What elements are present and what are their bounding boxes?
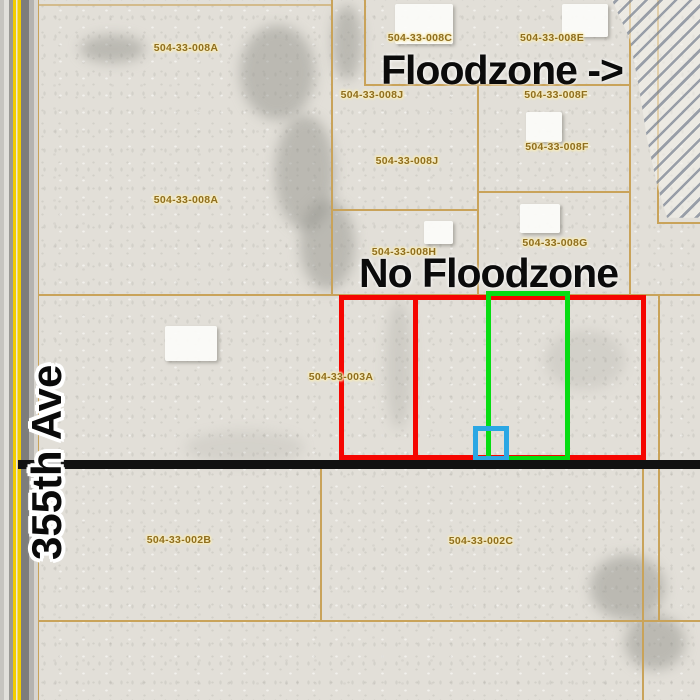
road-name-label: 355th Ave	[26, 365, 68, 560]
parcel-boundary-line	[331, 209, 478, 211]
parcel-boundary-line	[320, 466, 322, 621]
parcel-boundary-line	[657, 222, 700, 224]
parcel-boundary-line	[37, 620, 700, 622]
parcel-boundary-line	[477, 191, 630, 193]
parcel-label-002c: 504-33-002C	[449, 535, 514, 547]
building	[520, 204, 560, 233]
vegetation-patch	[240, 25, 315, 120]
parcel-label-008e: 504-33-008E	[520, 32, 584, 44]
floodzone-arrow-label: Floodzone ->	[381, 50, 623, 91]
parcel-label-008g: 504-33-008G	[522, 237, 587, 249]
parcel-label-008a-top: 504-33-008A	[154, 42, 219, 54]
parcel-label-002b: 504-33-002B	[147, 534, 212, 546]
parcel-label-003a: 504-33-003A	[309, 371, 374, 383]
parcel-boundary-line	[658, 466, 660, 621]
section-boundary-line	[18, 460, 700, 469]
vegetation-patch	[300, 200, 355, 290]
building	[165, 326, 217, 361]
parcel-boundary-line	[658, 294, 660, 461]
parcel-map: 504-33-008A 504-33-008C 504-33-008E 504-…	[0, 0, 700, 700]
parcel-label-008j-lower: 504-33-008J	[376, 155, 439, 167]
parcel-label-008a-lower: 504-33-008A	[154, 194, 219, 206]
no-floodzone-label: No Floodzone	[359, 253, 618, 294]
blue-parcel-outline	[473, 426, 509, 461]
vegetation-patch	[80, 35, 145, 63]
parcel-boundary-line	[331, 0, 333, 296]
parcel-boundary-line	[642, 466, 644, 700]
vegetation-patch	[590, 555, 665, 620]
parcel-boundary-line	[38, 4, 331, 6]
vegetation-patch	[332, 5, 362, 80]
vegetation-patch	[625, 615, 685, 670]
red-parcel-divider-line	[413, 295, 418, 460]
parcel-boundary-line	[364, 0, 366, 85]
parcel-boundary-line	[629, 0, 631, 296]
road-355th-ave	[0, 0, 38, 700]
parcel-label-008c: 504-33-008C	[388, 32, 453, 44]
parcel-label-008f-lower: 504-33-008F	[525, 141, 588, 153]
building	[424, 221, 453, 244]
building	[526, 112, 562, 142]
